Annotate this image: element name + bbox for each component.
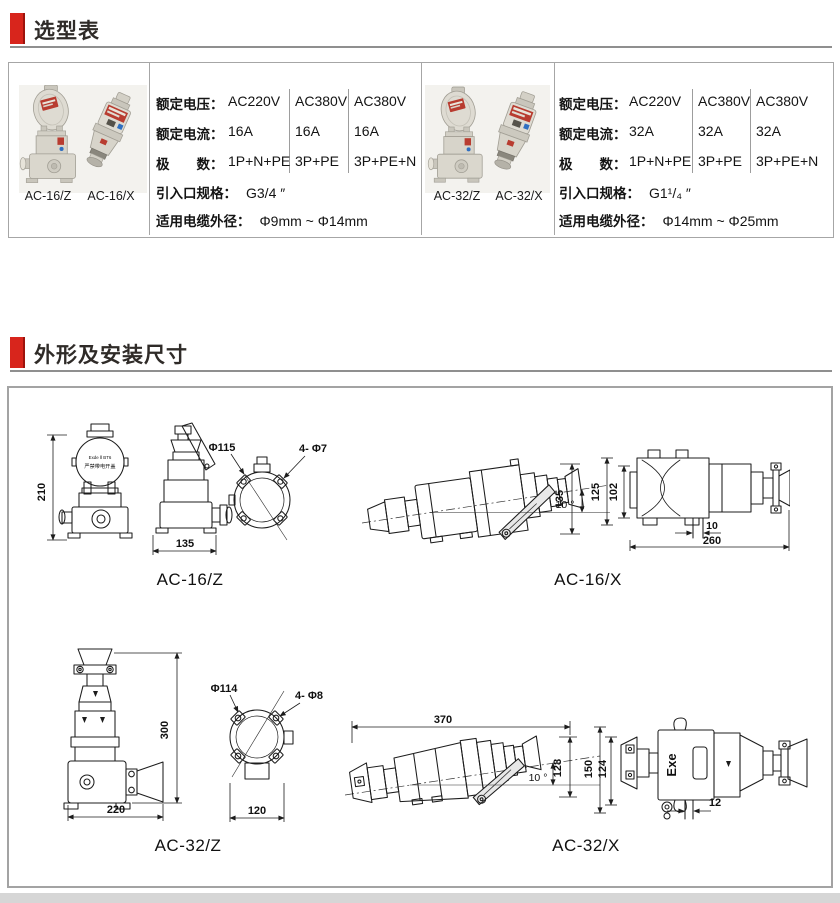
dim-w1-label: 12 [709, 797, 721, 809]
current-value: 32A [698, 123, 723, 139]
dim-w1-label: 10 [706, 520, 718, 532]
product-photo-ac16-group [11, 85, 149, 197]
current-value: 16A [228, 123, 253, 139]
drawing-label-ac32x: AC-32/X [546, 836, 626, 856]
inlet-label: 引入口规格： [156, 182, 237, 202]
cable-value: Φ14mm ~ Φ25mm [663, 213, 779, 229]
dim-width-label: 135 [176, 538, 194, 550]
voltage-value: AC380V [698, 93, 750, 109]
dim-height-label: 135 [554, 490, 566, 508]
product-photo-ac16x [80, 89, 138, 172]
drawing-label-ac16z: AC-16/Z [150, 570, 230, 590]
dim-circle-label: Φ114 [211, 683, 239, 695]
poles-value: 3P+PE [698, 153, 742, 169]
ac16z-top-view [229, 457, 290, 528]
ac16z-front-view [59, 424, 132, 538]
product-photo-ac16z [20, 85, 75, 183]
ac32z-top-view [230, 710, 293, 779]
current-value: 32A [756, 123, 781, 139]
body-marking-exe: Exe [664, 753, 679, 776]
poles-value: 1P+N+PE [228, 153, 290, 169]
voltage-value: AC220V [228, 93, 280, 109]
dim-circle-label: Φ115 [209, 442, 236, 454]
drawing-ac16x: 10 ° 135 [360, 420, 790, 595]
photo-label-ac32x: AC-32/X [488, 189, 550, 203]
row-label-voltage: 额定电压： [559, 93, 627, 113]
plate-marking-line2: 严禁带电开盖 [84, 462, 115, 470]
spec-col-divider [692, 89, 693, 173]
voltage-value: AC380V [295, 93, 347, 109]
drawing-ac32z: 300 220 Φ114 4- Φ8 120 [40, 645, 330, 855]
ac16x-plug-view [364, 451, 587, 558]
cable-row: 适用电缆外径： Φ9mm ~ Φ14mm [156, 210, 368, 230]
product-photo-ac32z [428, 87, 482, 182]
dim-height-label: 300 [159, 721, 171, 739]
catalog-page: 选型表 [0, 0, 840, 903]
voltage-value: AC380V [354, 93, 406, 109]
section-title: 选型表 [34, 15, 100, 45]
dim-holes-label: 4- Φ7 [299, 443, 327, 455]
poles-value: 3P+PE+N [756, 153, 818, 169]
inlet-row: 引入口规格： G1¹/₄ ″ [559, 182, 691, 202]
section-header-dimensions: 外形及安装尺寸 [0, 337, 840, 387]
table-divider [149, 63, 150, 235]
drawing-label-ac32z: AC-32/Z [148, 836, 228, 856]
angle-label: 10 ° [529, 772, 548, 784]
dim-h3-label: 124 [597, 759, 609, 778]
photo-label-ac16z: AC-16/Z [17, 189, 79, 203]
dim-w2-label: 120 [248, 805, 266, 817]
red-accent-bar [10, 13, 25, 44]
drawing-ac32x: 370 10 ° [345, 695, 825, 855]
ac16z-side-view [156, 423, 232, 533]
ac32x-plug-view [347, 730, 544, 822]
plate-marking-line1: Exde Ⅱ BT6 [89, 455, 112, 460]
poles-value: 3P+PE+N [354, 153, 416, 169]
dim-h2-label: 150 [583, 760, 595, 778]
table-divider [554, 63, 555, 235]
photo-label-ac32z: AC-32/Z [426, 189, 488, 203]
selection-table: 额定电压： 额定电流： 极 数： AC220V 16A 1P+N+PE AC38… [8, 62, 834, 238]
poles-value: 3P+PE [295, 153, 339, 169]
dim-h3-label: 102 [608, 483, 620, 501]
dim-height-label: 210 [36, 483, 48, 501]
row-label-poles: 极 数： [559, 153, 627, 173]
drawing-ac16z: 210 Exde Ⅱ BT6 严禁带电开盖 [35, 418, 335, 568]
inlet-label: 引入口规格： [559, 182, 640, 202]
footer-bar [0, 893, 840, 903]
voltage-value: AC380V [756, 93, 808, 109]
dim-w2-label: 260 [703, 535, 721, 547]
inlet-value: G1¹/₄ ″ [649, 185, 691, 201]
row-label-poles: 极 数： [156, 153, 224, 173]
current-value: 16A [295, 123, 320, 139]
red-accent-bar [10, 337, 25, 368]
inlet-value: G3/4 ″ [246, 185, 285, 201]
voltage-value: AC220V [629, 93, 681, 109]
poles-value: 1P+N+PE [629, 153, 691, 169]
cable-label: 适用电缆外径： [559, 210, 654, 230]
current-value: 16A [354, 123, 379, 139]
section-title: 外形及安装尺寸 [34, 339, 188, 369]
dim-height-label: 128 [552, 759, 564, 777]
product-photo-ac32-group [421, 85, 554, 197]
dim-h2-label: 125 [590, 483, 602, 501]
cable-label: 适用电缆外径： [156, 210, 251, 230]
drawing-label-ac16x: AC-16/X [548, 570, 628, 590]
photo-label-ac16x: AC-16/X [80, 189, 142, 203]
inlet-row: 引入口规格： G3/4 ″ [156, 182, 285, 202]
dim-holes-label: 4- Φ8 [295, 690, 323, 702]
product-photo-ac32x [487, 88, 543, 173]
ac32z-front-view [64, 649, 163, 809]
row-label-voltage: 额定电压： [156, 93, 224, 113]
row-label-current: 额定电流： [156, 123, 224, 143]
section-header-selection: 选型表 [0, 13, 840, 63]
current-value: 32A [629, 123, 654, 139]
cable-row: 适用电缆外径： Φ14mm ~ Φ25mm [559, 210, 779, 230]
dim-width-label: 220 [107, 804, 125, 816]
row-label-current: 额定电流： [559, 123, 627, 143]
section-underline [10, 46, 832, 48]
section-underline [10, 370, 832, 372]
cable-value: Φ9mm ~ Φ14mm [260, 213, 368, 229]
spec-col-divider [348, 89, 349, 173]
dim-length-label: 370 [434, 714, 452, 726]
